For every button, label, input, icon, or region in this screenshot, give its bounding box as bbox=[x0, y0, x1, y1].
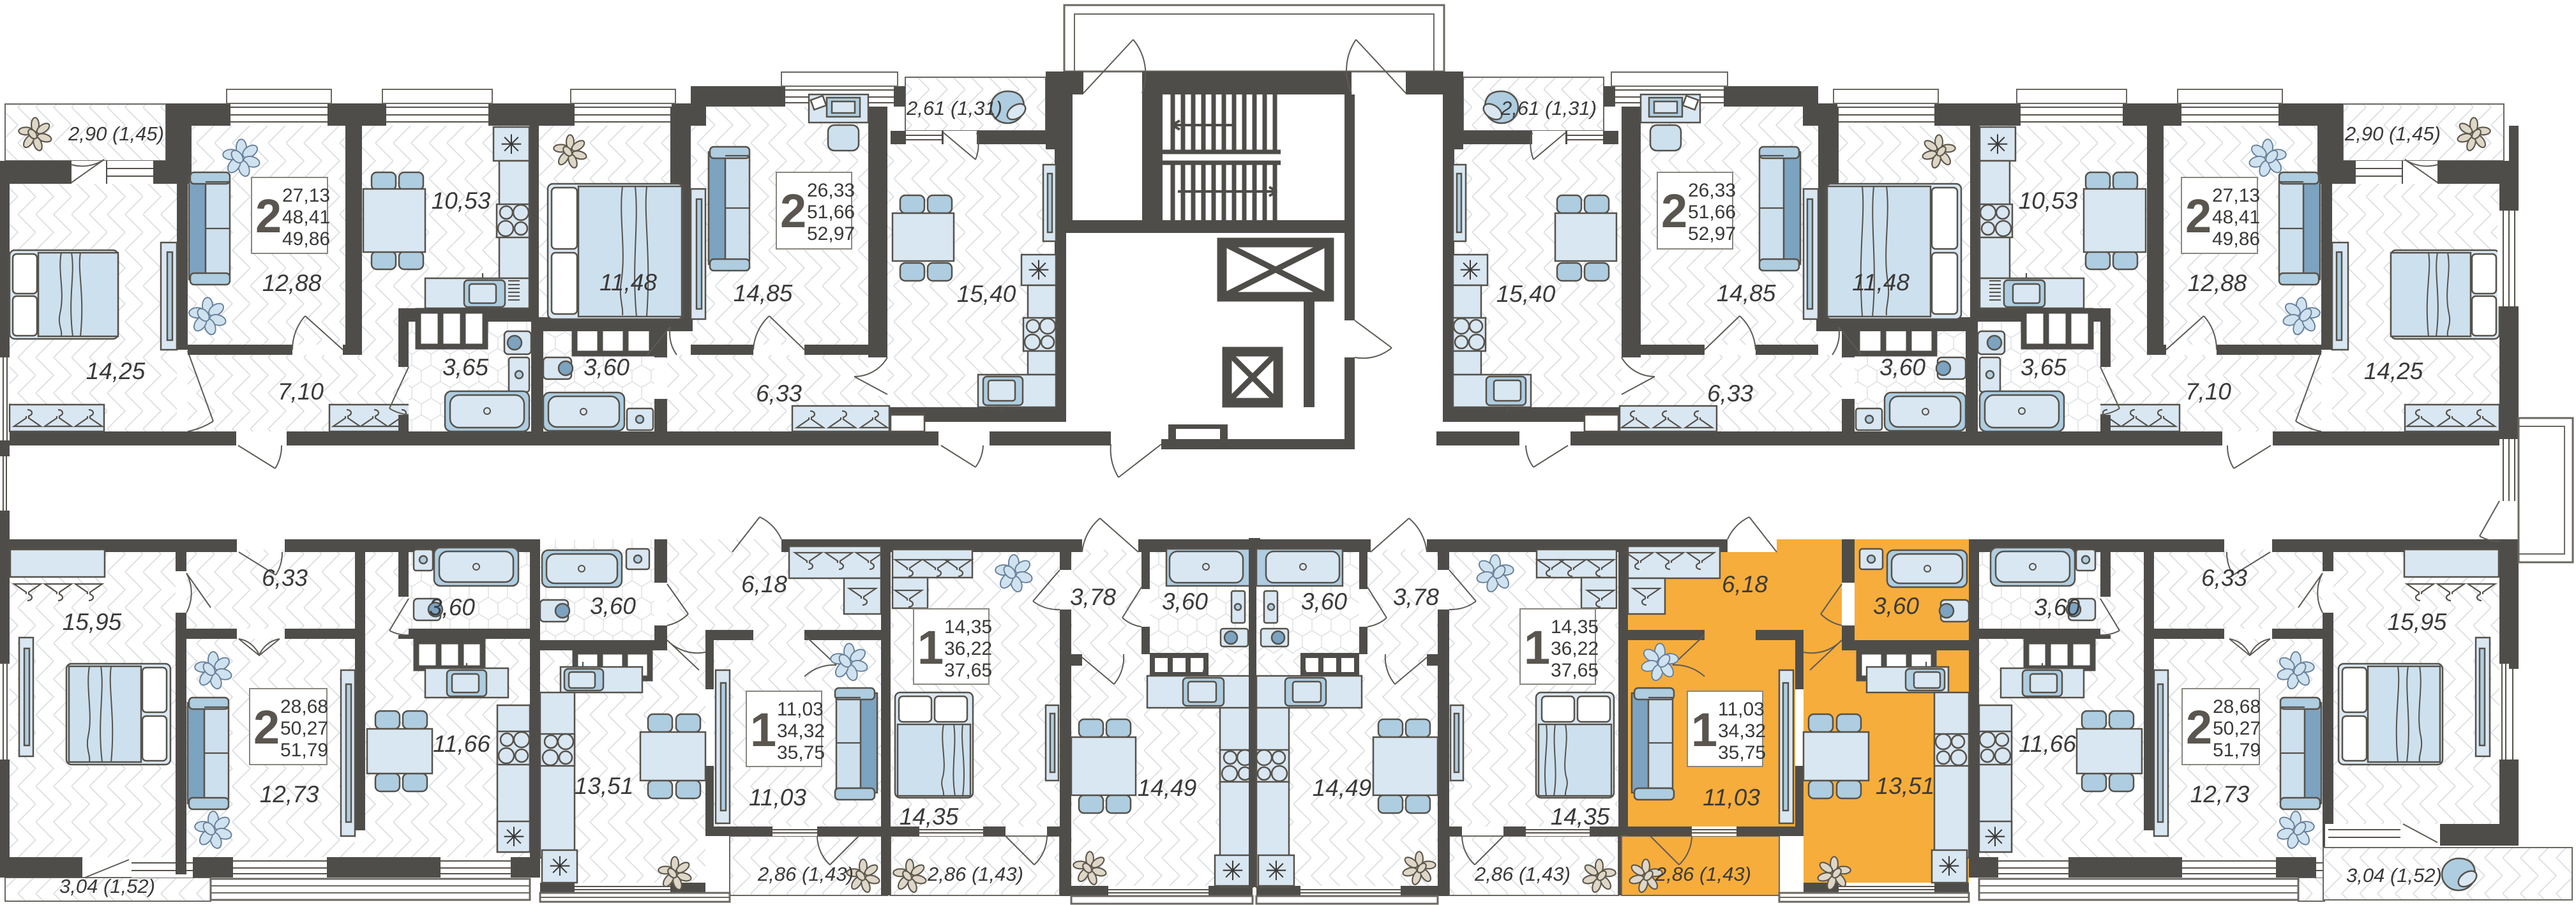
svg-text:2: 2 bbox=[2186, 701, 2212, 754]
svg-text:✳: ✳ bbox=[1938, 851, 1960, 881]
svg-text:3,60: 3,60 bbox=[429, 594, 475, 620]
svg-text:49,86: 49,86 bbox=[2212, 228, 2260, 250]
svg-text:6,33: 6,33 bbox=[262, 565, 308, 591]
svg-text:1: 1 bbox=[1691, 703, 1717, 756]
svg-text:51,79: 51,79 bbox=[2213, 740, 2261, 761]
svg-text:34,32: 34,32 bbox=[777, 721, 825, 742]
svg-text:7,10: 7,10 bbox=[2185, 378, 2231, 405]
svg-text:2,86 (1,43): 2,86 (1,43) bbox=[927, 863, 1023, 885]
svg-text:12,88: 12,88 bbox=[262, 270, 322, 296]
svg-text:2: 2 bbox=[253, 701, 280, 754]
svg-text:27,13: 27,13 bbox=[282, 185, 330, 206]
svg-text:2: 2 bbox=[1661, 184, 1687, 237]
svg-text:2,61 (1,31): 2,61 (1,31) bbox=[906, 97, 1002, 119]
svg-text:12,73: 12,73 bbox=[260, 781, 319, 807]
svg-text:50,27: 50,27 bbox=[280, 718, 328, 739]
svg-text:2,90 (1,45): 2,90 (1,45) bbox=[68, 123, 164, 145]
svg-text:6,33: 6,33 bbox=[2201, 565, 2247, 591]
svg-text:2,86 (1,43): 2,86 (1,43) bbox=[1474, 863, 1570, 885]
svg-text:2,90 (1,45): 2,90 (1,45) bbox=[2344, 123, 2441, 145]
svg-text:26,33: 26,33 bbox=[807, 180, 855, 201]
svg-text:36,22: 36,22 bbox=[944, 638, 992, 659]
svg-text:3,60: 3,60 bbox=[1873, 593, 1919, 619]
svg-text:27,13: 27,13 bbox=[2212, 185, 2260, 206]
svg-text:12,73: 12,73 bbox=[2190, 781, 2250, 807]
svg-text:10,53: 10,53 bbox=[2019, 188, 2078, 214]
svg-text:14,85: 14,85 bbox=[734, 280, 793, 306]
svg-text:48,41: 48,41 bbox=[282, 207, 330, 228]
svg-text:50,27: 50,27 bbox=[2213, 718, 2261, 739]
svg-text:7,10: 7,10 bbox=[278, 378, 324, 405]
svg-text:6,18: 6,18 bbox=[741, 571, 787, 597]
svg-text:15,95: 15,95 bbox=[2388, 609, 2447, 635]
svg-text:11,66: 11,66 bbox=[2019, 731, 2076, 757]
svg-text:52,97: 52,97 bbox=[1688, 223, 1736, 244]
svg-text:3,60: 3,60 bbox=[2034, 594, 2080, 620]
svg-text:✳: ✳ bbox=[1221, 856, 1244, 886]
svg-text:48,41: 48,41 bbox=[2212, 207, 2260, 228]
svg-text:34,32: 34,32 bbox=[1718, 721, 1766, 742]
svg-text:3,60: 3,60 bbox=[1301, 588, 1347, 615]
svg-text:✳: ✳ bbox=[1459, 255, 1481, 285]
svg-text:11,03: 11,03 bbox=[777, 699, 824, 720]
svg-text:14,35: 14,35 bbox=[900, 804, 959, 830]
svg-text:3,78: 3,78 bbox=[1070, 584, 1116, 610]
svg-text:✳: ✳ bbox=[500, 130, 522, 160]
svg-text:36,22: 36,22 bbox=[1551, 638, 1599, 659]
svg-text:26,33: 26,33 bbox=[1688, 180, 1736, 201]
svg-text:2: 2 bbox=[780, 184, 806, 237]
svg-text:✳: ✳ bbox=[502, 822, 525, 852]
svg-text:2: 2 bbox=[2185, 190, 2211, 243]
svg-text:2,61 (1,31): 2,61 (1,31) bbox=[1500, 97, 1597, 119]
svg-text:37,65: 37,65 bbox=[944, 660, 992, 681]
svg-text:3,65: 3,65 bbox=[442, 354, 488, 380]
svg-text:51,79: 51,79 bbox=[280, 740, 328, 761]
svg-text:15,95: 15,95 bbox=[63, 609, 122, 635]
svg-text:✳: ✳ bbox=[1265, 856, 1287, 886]
svg-text:3,65: 3,65 bbox=[2021, 354, 2067, 380]
svg-text:11,66: 11,66 bbox=[433, 731, 490, 757]
svg-text:6,33: 6,33 bbox=[1707, 380, 1753, 407]
svg-text:11,03: 11,03 bbox=[1703, 784, 1760, 811]
svg-text:11,48: 11,48 bbox=[1852, 269, 1909, 295]
svg-text:3,60: 3,60 bbox=[1879, 354, 1925, 380]
svg-text:12,88: 12,88 bbox=[2188, 270, 2247, 296]
svg-text:52,97: 52,97 bbox=[807, 223, 855, 244]
svg-text:35,75: 35,75 bbox=[777, 742, 825, 763]
svg-text:6,33: 6,33 bbox=[756, 380, 802, 407]
svg-text:3,60: 3,60 bbox=[584, 354, 629, 380]
svg-text:✳: ✳ bbox=[1027, 255, 1050, 285]
svg-text:14,25: 14,25 bbox=[2364, 358, 2423, 384]
svg-text:28,68: 28,68 bbox=[2213, 696, 2261, 717]
svg-text:11,48: 11,48 bbox=[599, 269, 657, 295]
svg-text:35,75: 35,75 bbox=[1718, 742, 1766, 763]
svg-text:37,65: 37,65 bbox=[1551, 660, 1599, 681]
svg-text:28,68: 28,68 bbox=[280, 696, 328, 717]
svg-text:14,35: 14,35 bbox=[944, 617, 992, 638]
svg-text:14,49: 14,49 bbox=[1313, 775, 1372, 801]
svg-text:3,04 (1,52): 3,04 (1,52) bbox=[59, 875, 155, 897]
svg-text:3,78: 3,78 bbox=[1393, 584, 1439, 610]
svg-text:11,03: 11,03 bbox=[1718, 699, 1765, 720]
svg-text:11,03: 11,03 bbox=[749, 784, 806, 811]
svg-text:15,40: 15,40 bbox=[1496, 281, 1556, 307]
svg-text:2: 2 bbox=[255, 190, 282, 243]
svg-text:51,66: 51,66 bbox=[807, 202, 855, 223]
svg-text:1: 1 bbox=[750, 703, 776, 756]
svg-text:13,51: 13,51 bbox=[575, 773, 634, 799]
svg-text:1: 1 bbox=[1524, 621, 1550, 674]
svg-text:3,04 (1,52): 3,04 (1,52) bbox=[2346, 864, 2442, 886]
svg-text:6,18: 6,18 bbox=[1722, 571, 1768, 597]
svg-text:15,40: 15,40 bbox=[957, 281, 1016, 307]
svg-text:14,85: 14,85 bbox=[1717, 280, 1776, 306]
svg-text:14,49: 14,49 bbox=[1138, 775, 1197, 801]
svg-text:✳: ✳ bbox=[548, 851, 571, 881]
svg-text:3,60: 3,60 bbox=[590, 593, 636, 619]
svg-text:2,86 (1,43): 2,86 (1,43) bbox=[1655, 863, 1751, 885]
svg-text:✳: ✳ bbox=[1984, 822, 2006, 852]
svg-text:14,35: 14,35 bbox=[1551, 617, 1599, 638]
svg-text:13,51: 13,51 bbox=[1876, 773, 1935, 799]
svg-text:14,35: 14,35 bbox=[1551, 804, 1610, 830]
svg-text:10,53: 10,53 bbox=[432, 188, 491, 214]
svg-text:49,86: 49,86 bbox=[282, 228, 330, 250]
svg-text:2,86 (1,43): 2,86 (1,43) bbox=[757, 863, 854, 885]
svg-text:14,25: 14,25 bbox=[86, 358, 146, 384]
svg-text:1: 1 bbox=[917, 621, 944, 674]
svg-text:3,60: 3,60 bbox=[1162, 588, 1208, 615]
svg-text:✳: ✳ bbox=[1986, 130, 2008, 160]
svg-text:51,66: 51,66 bbox=[1688, 202, 1736, 223]
